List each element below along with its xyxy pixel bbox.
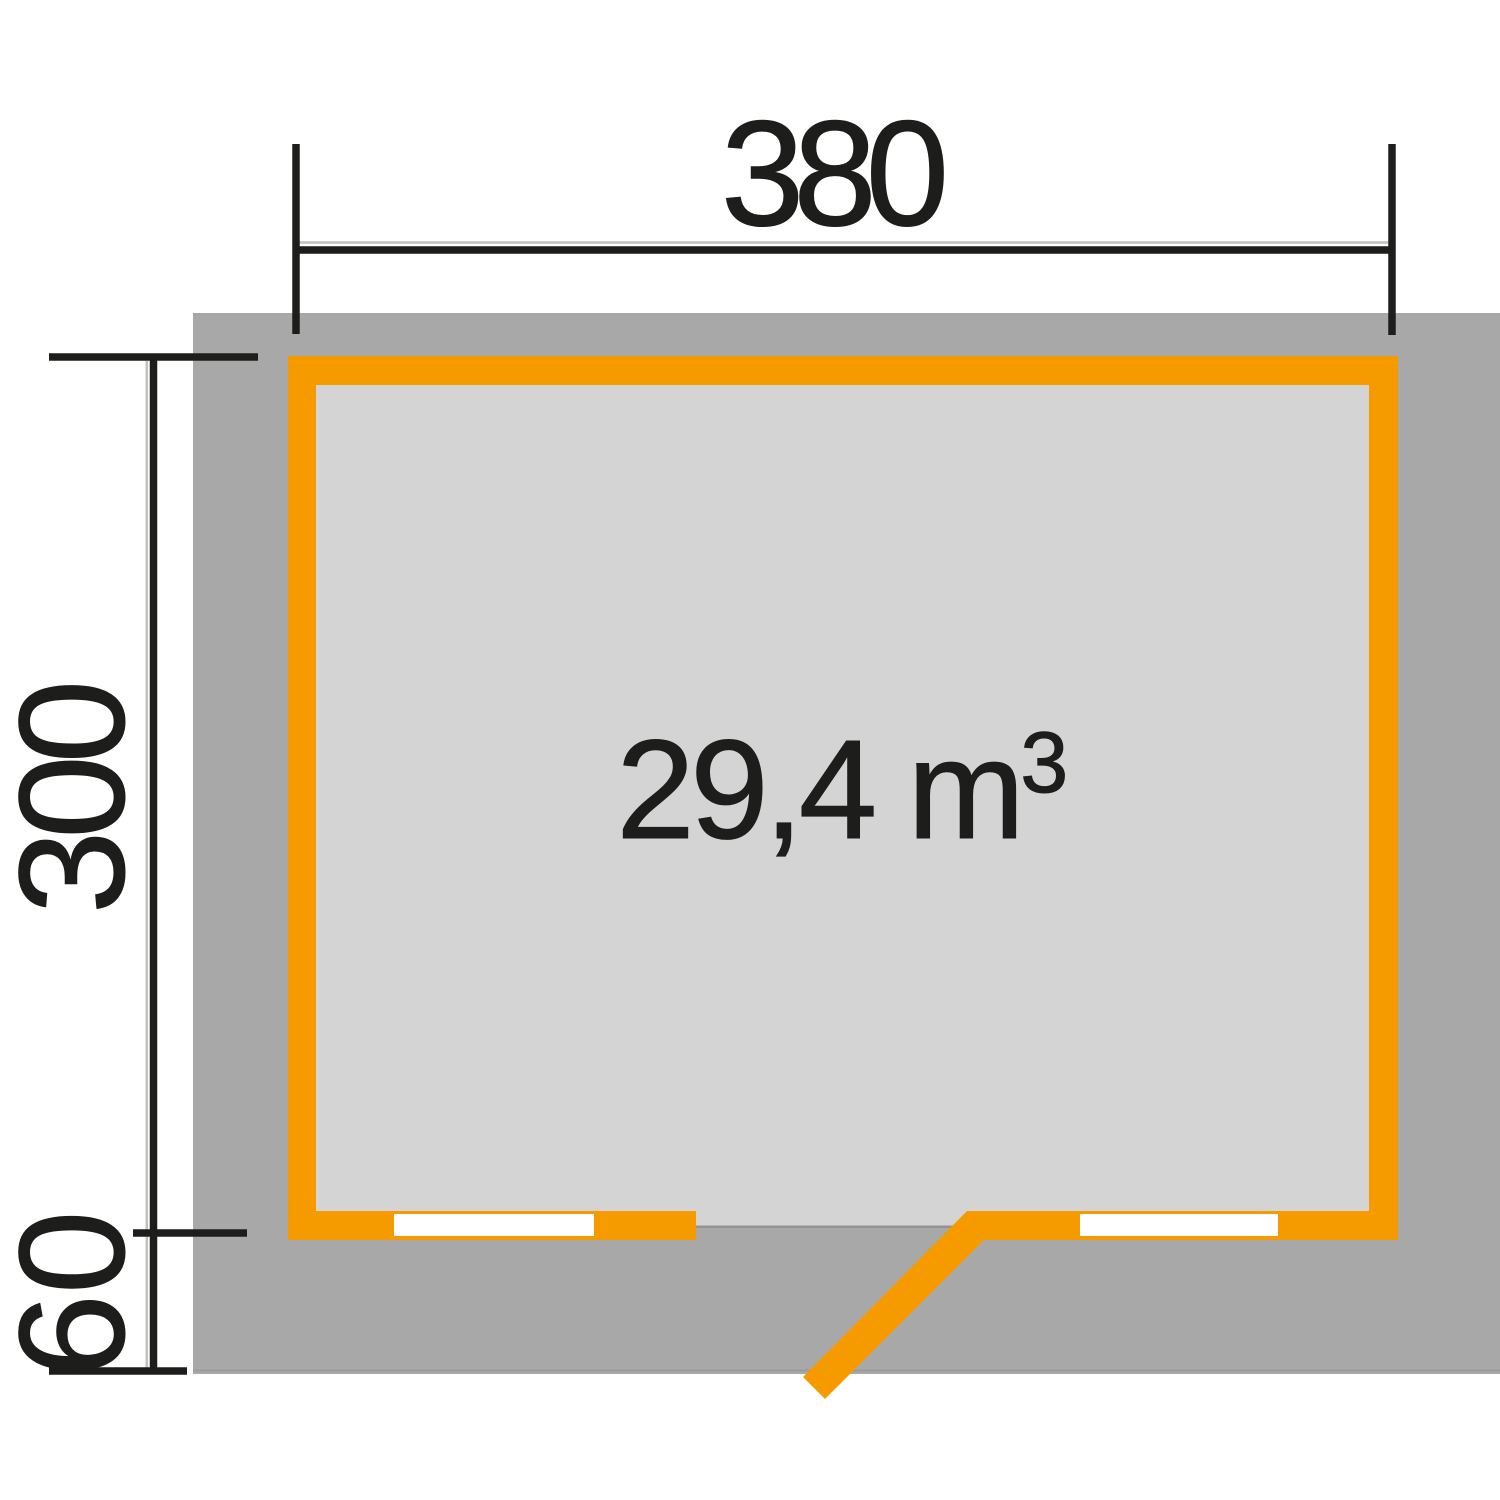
svg-text:300: 300 — [0, 685, 156, 914]
svg-text:60: 60 — [0, 1211, 156, 1378]
svg-text:380: 380 — [721, 89, 944, 257]
svg-text:29,4 m3: 29,4 m3 — [616, 710, 1065, 868]
